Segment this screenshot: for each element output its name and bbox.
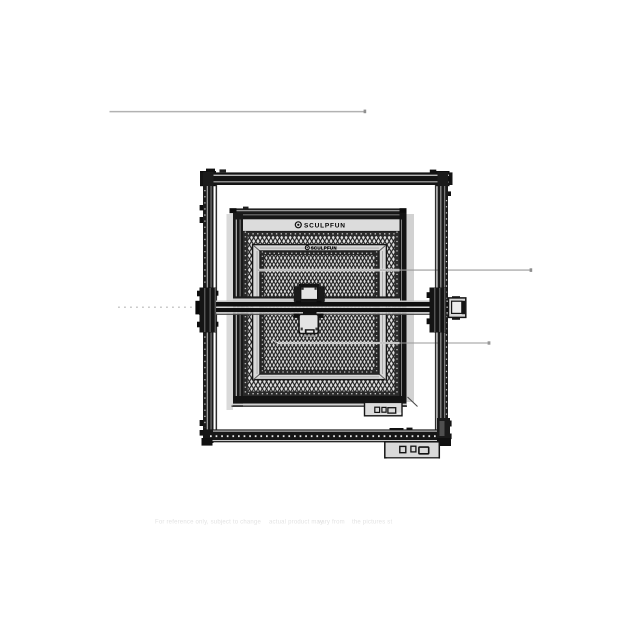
svg-text:actual product may: actual product may xyxy=(269,520,323,526)
svg-text:the pictures st: the pictures st xyxy=(352,520,392,526)
svg-text:SCULPFUN: SCULPFUN xyxy=(311,246,337,251)
svg-text:vary from: vary from xyxy=(318,520,345,526)
svg-text:SCULPFUN: SCULPFUN xyxy=(304,222,346,229)
svg-text:For reference only, subject to: For reference only, subject to change xyxy=(155,520,261,526)
